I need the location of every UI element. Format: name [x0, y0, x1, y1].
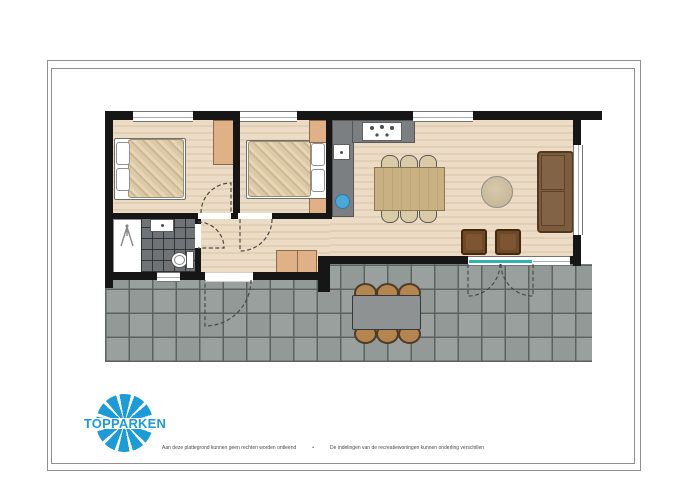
- disclaimer-left: Aan deze plattegrond kunnen geen rechten…: [162, 445, 296, 451]
- wall-bottom-hall: [180, 272, 205, 280]
- bed1-pillow: [116, 168, 130, 191]
- floor-plan-page: TOPPARKEN Aan deze plattegrond kunnen ge…: [0, 0, 700, 500]
- kitchen-appliance: [333, 144, 350, 160]
- shower-icon: [115, 222, 139, 250]
- sofa-cushion: [541, 155, 565, 190]
- window-living-top: [413, 111, 473, 122]
- topparken-logo-text: TOPPARKEN: [70, 416, 180, 431]
- toilet-tank: [186, 251, 194, 269]
- window-living-right: [573, 145, 583, 235]
- wall-bedroom2-bottom: [272, 213, 330, 219]
- entrance-door-opening: [205, 272, 253, 282]
- coffee-table: [481, 176, 513, 208]
- wall-bedroom-divider: [233, 111, 240, 213]
- bed2-pillow: [311, 169, 325, 192]
- wall-top: [297, 111, 413, 120]
- wall-right: [573, 120, 581, 145]
- window-bedroom2: [238, 111, 297, 122]
- cabinet-divider: [297, 251, 298, 273]
- sofa-cushion: [541, 191, 565, 226]
- bedroom1-wardrobe: [213, 120, 234, 165]
- outdoor-table: [352, 295, 421, 330]
- wall-bedroom1-bottom: [105, 213, 198, 219]
- bed2-pillow: [311, 143, 325, 166]
- disclaimer-separator: •: [312, 445, 314, 451]
- footer-disclaimer: Aan deze plattegrond kunnen geen rechten…: [162, 445, 484, 451]
- shower-stall: [113, 219, 143, 274]
- wall-left: [105, 111, 113, 280]
- hall-cabinet: [276, 250, 317, 274]
- wall-bedroom1-bottom: [231, 213, 238, 219]
- bed1-pillow: [116, 142, 130, 165]
- armchair: [495, 229, 521, 255]
- double-bed-1: [114, 138, 186, 200]
- armchair: [461, 229, 487, 255]
- double-bed-2: [246, 140, 328, 199]
- wall-bedroom2-kitchen: [326, 120, 332, 219]
- dining-table: [374, 167, 445, 211]
- washbasin: [150, 219, 174, 232]
- wall-bottom-hall: [253, 272, 330, 280]
- wall-top: [193, 111, 238, 120]
- window-bedroom1: [133, 111, 193, 122]
- wall-top: [473, 111, 602, 120]
- bed2-duvet: [248, 141, 311, 197]
- hob-burners-icon: [363, 123, 401, 140]
- window-bathroom: [157, 272, 180, 282]
- french-doors: [468, 256, 533, 266]
- kitchen-sink: [335, 194, 350, 209]
- wall-bottom-living: [570, 256, 581, 264]
- kitchen-hob: [362, 122, 402, 141]
- bed1-duvet: [128, 139, 184, 198]
- wall-left-stub: [105, 280, 113, 288]
- wall-bottom-living: [325, 256, 468, 264]
- sofa: [537, 151, 574, 233]
- wall-bottom-bath: [105, 272, 157, 280]
- wall-bathroom-right: [195, 248, 201, 272]
- disclaimer-right: De indelingen van de recreatiewoningen k…: [330, 445, 484, 451]
- window-living-bottom: [533, 256, 570, 266]
- wall-bathroom-right: [195, 219, 201, 224]
